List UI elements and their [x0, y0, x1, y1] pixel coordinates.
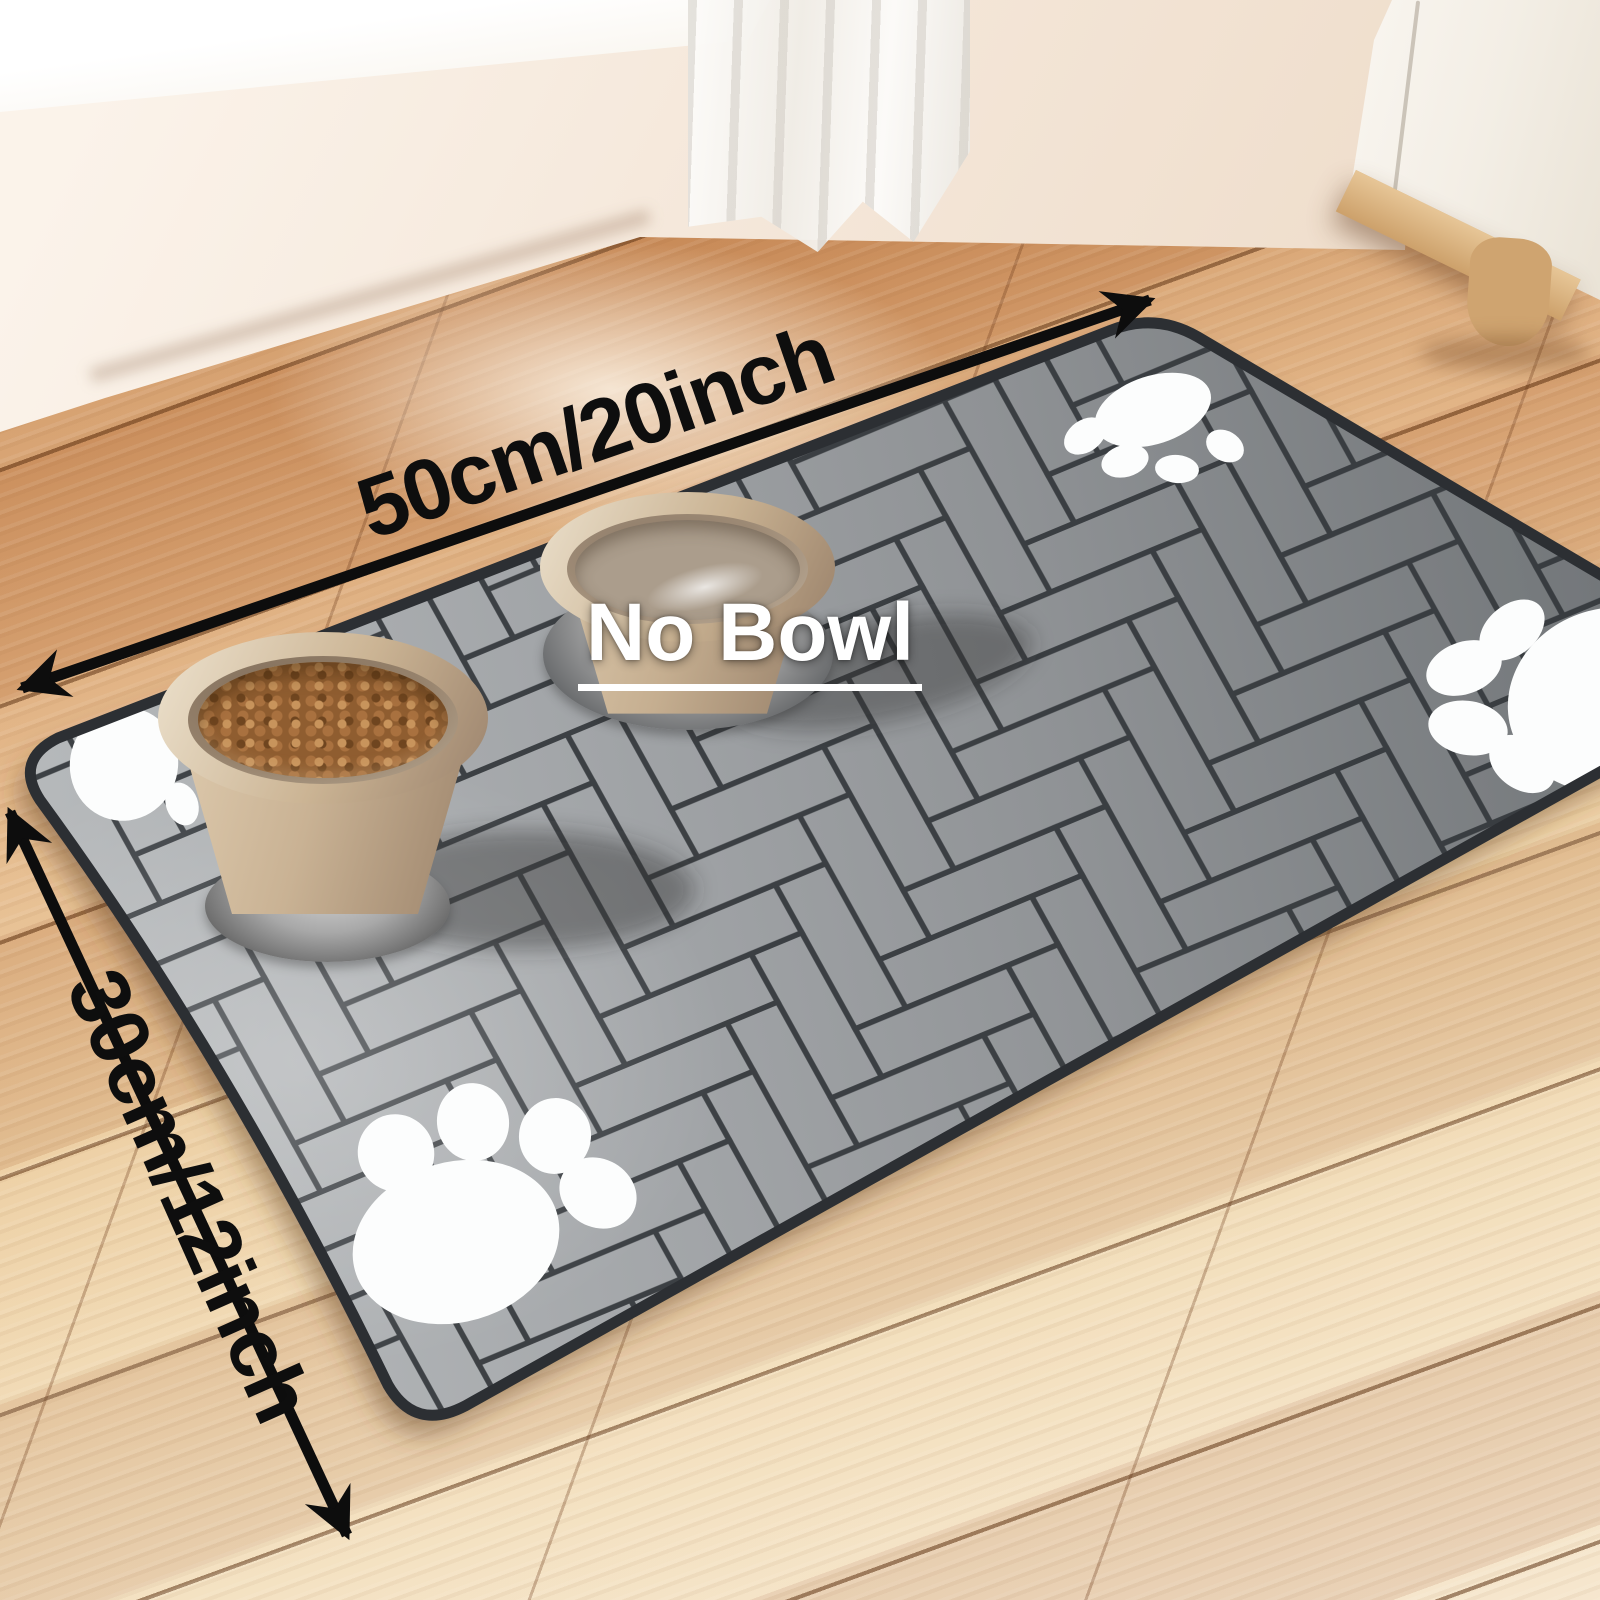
product-photo: 50cm/20inch 30cm/12inch No Bowl	[0, 0, 1600, 1600]
no-bowl-label-text: No Bowl	[578, 592, 922, 691]
no-bowl-label: No Bowl	[520, 592, 980, 732]
